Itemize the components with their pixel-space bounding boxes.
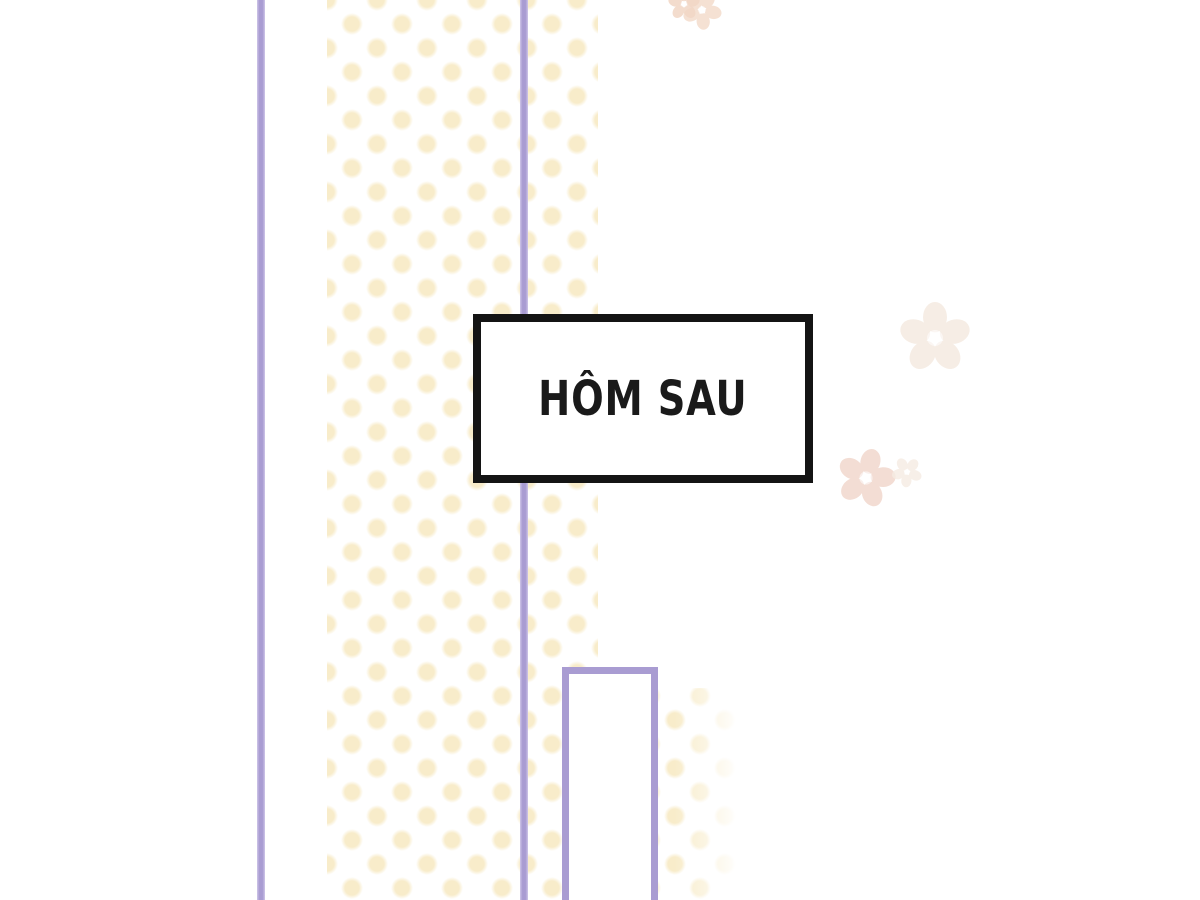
sakura-flower-icon xyxy=(895,298,975,378)
caption-box: HÔM SAU xyxy=(473,314,813,483)
panel-rectangle-outline xyxy=(562,667,658,900)
panel-line-left xyxy=(257,0,265,900)
sakura-flower-icon xyxy=(680,0,724,32)
sakura-flower-icon xyxy=(890,455,924,489)
caption-text: HÔM SAU xyxy=(538,375,747,423)
comic-panel: HÔM SAU xyxy=(0,0,1200,900)
